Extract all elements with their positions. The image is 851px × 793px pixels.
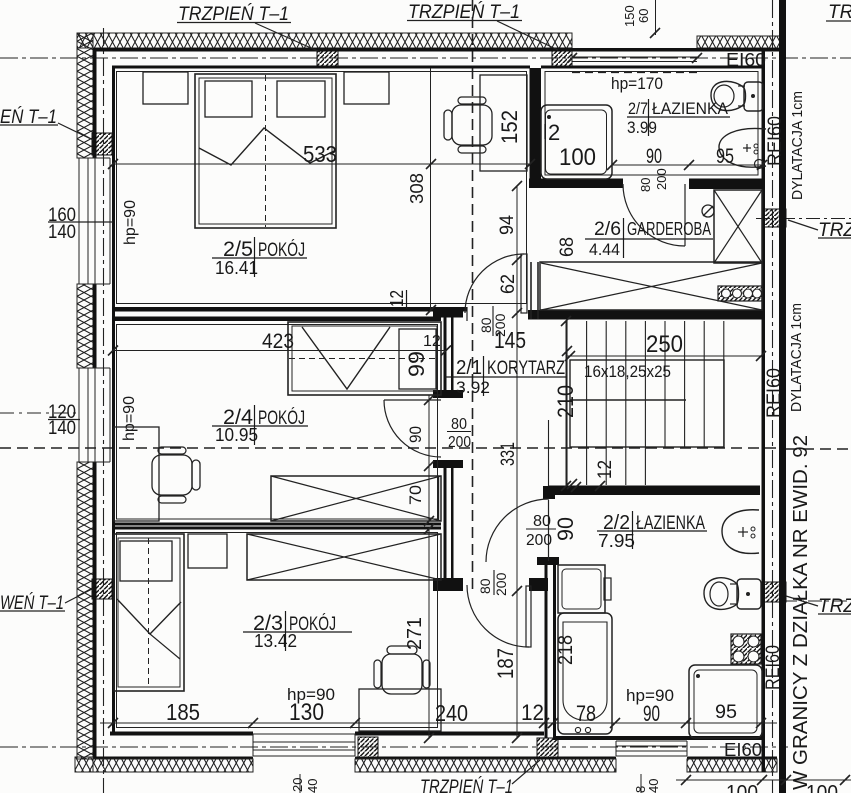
svg-text:hp=90: hp=90 — [287, 686, 335, 704]
svg-text:EI60: EI60 — [724, 740, 762, 760]
svg-text:2/1: 2/1 — [456, 357, 482, 379]
svg-text:185: 185 — [166, 699, 200, 725]
svg-text:100: 100 — [806, 782, 838, 793]
svg-text:80: 80 — [533, 513, 551, 530]
svg-text:REI60: REI60 — [764, 368, 785, 418]
svg-text:250: 250 — [646, 331, 683, 358]
svg-text:68: 68 — [557, 237, 578, 257]
svg-text:hp=90: hp=90 — [121, 396, 138, 441]
svg-text:200: 200 — [526, 532, 552, 549]
svg-text:150: 150 — [622, 5, 637, 27]
svg-text:16.41: 16.41 — [215, 258, 258, 278]
svg-text:REI60: REI60 — [763, 645, 784, 690]
svg-text:TRZP: TRZP — [818, 220, 851, 241]
svg-text:533: 533 — [303, 141, 337, 167]
svg-text:13.42: 13.42 — [254, 631, 297, 651]
svg-text:EŃ T–1: EŃ T–1 — [0, 107, 57, 128]
svg-text:100: 100 — [559, 144, 596, 171]
svg-text:W GRANICY Z DZIAŁKA NR EWID. 9: W GRANICY Z DZIAŁKA NR EWID. 92 — [789, 435, 812, 790]
svg-text:WEŃ T–1: WEŃ T–1 — [0, 593, 64, 614]
svg-text:140: 140 — [48, 418, 76, 439]
svg-text:hp=90: hp=90 — [626, 687, 674, 705]
svg-text:90: 90 — [553, 517, 578, 541]
svg-text:78: 78 — [576, 701, 596, 726]
svg-text:hp=90: hp=90 — [122, 200, 139, 245]
svg-text:TRZPIEŃ T–1: TRZPIEŃ T–1 — [420, 777, 513, 793]
svg-text:TRZPIEŃ T–1: TRZPIEŃ T–1 — [178, 4, 289, 25]
svg-text:GARDEROBA: GARDEROBA — [627, 219, 711, 239]
svg-text:210: 210 — [553, 385, 578, 418]
svg-text:12: 12 — [423, 333, 441, 350]
svg-text:16x18,25x25: 16x18,25x25 — [584, 362, 671, 381]
svg-text:REI60: REI60 — [765, 116, 786, 166]
svg-text:99: 99 — [404, 351, 429, 377]
svg-text:200: 200 — [448, 434, 471, 451]
svg-text:187: 187 — [493, 648, 518, 679]
svg-text:ŁAZIENKA: ŁAZIENKA — [652, 99, 729, 118]
svg-text:140: 140 — [48, 222, 76, 243]
svg-text:40: 40 — [646, 779, 661, 793]
svg-text:20: 20 — [290, 778, 305, 792]
svg-text:12: 12 — [387, 290, 407, 307]
svg-text:12: 12 — [595, 460, 616, 479]
svg-text:2: 2 — [548, 120, 560, 145]
svg-text:10.95: 10.95 — [215, 425, 258, 445]
svg-text:7.95: 7.95 — [598, 531, 635, 551]
svg-text:3.99: 3.99 — [627, 118, 657, 137]
svg-text:KORYTARZ: KORYTARZ — [487, 358, 565, 379]
svg-text:240: 240 — [435, 700, 468, 726]
svg-text:80: 80 — [638, 178, 653, 192]
svg-text:TRZPIEŃ T–1: TRZPIEŃ T–1 — [408, 2, 520, 23]
svg-text:2/7: 2/7 — [628, 99, 648, 118]
svg-text:271: 271 — [404, 617, 426, 650]
svg-text:3.92: 3.92 — [456, 378, 490, 397]
svg-text:95: 95 — [716, 145, 734, 168]
svg-text:80: 80 — [451, 416, 467, 433]
svg-text:95: 95 — [715, 702, 737, 723]
svg-text:80: 80 — [477, 578, 493, 594]
svg-text:90: 90 — [406, 426, 425, 443]
svg-text:2/6: 2/6 — [594, 219, 621, 240]
svg-text:90: 90 — [646, 145, 662, 168]
svg-text:70: 70 — [406, 485, 425, 505]
svg-text:100: 100 — [726, 782, 758, 793]
svg-text:200: 200 — [654, 168, 669, 190]
svg-text:TRZP: TRZP — [818, 596, 851, 617]
svg-text:DYLATACJA 1cm: DYLATACJA 1cm — [788, 303, 805, 412]
svg-text:12: 12 — [521, 700, 544, 725]
svg-text:423: 423 — [262, 330, 294, 353]
svg-text:152: 152 — [497, 110, 522, 144]
svg-text:60: 60 — [636, 9, 651, 23]
svg-text:218: 218 — [555, 635, 577, 665]
svg-text:308: 308 — [407, 173, 427, 204]
svg-text:94: 94 — [497, 215, 518, 235]
svg-text:hp=170: hp=170 — [611, 75, 663, 93]
svg-text:200: 200 — [492, 313, 508, 337]
svg-text:4.44: 4.44 — [589, 240, 620, 259]
svg-text:EI60: EI60 — [726, 50, 766, 70]
svg-text:331: 331 — [498, 442, 519, 466]
svg-text:40: 40 — [305, 779, 320, 793]
svg-text:200: 200 — [493, 572, 509, 596]
svg-text:DYLATACJA 1cm: DYLATACJA 1cm — [789, 91, 806, 200]
svg-text:TRZ: TRZ — [828, 2, 851, 23]
svg-text:62: 62 — [498, 274, 519, 294]
